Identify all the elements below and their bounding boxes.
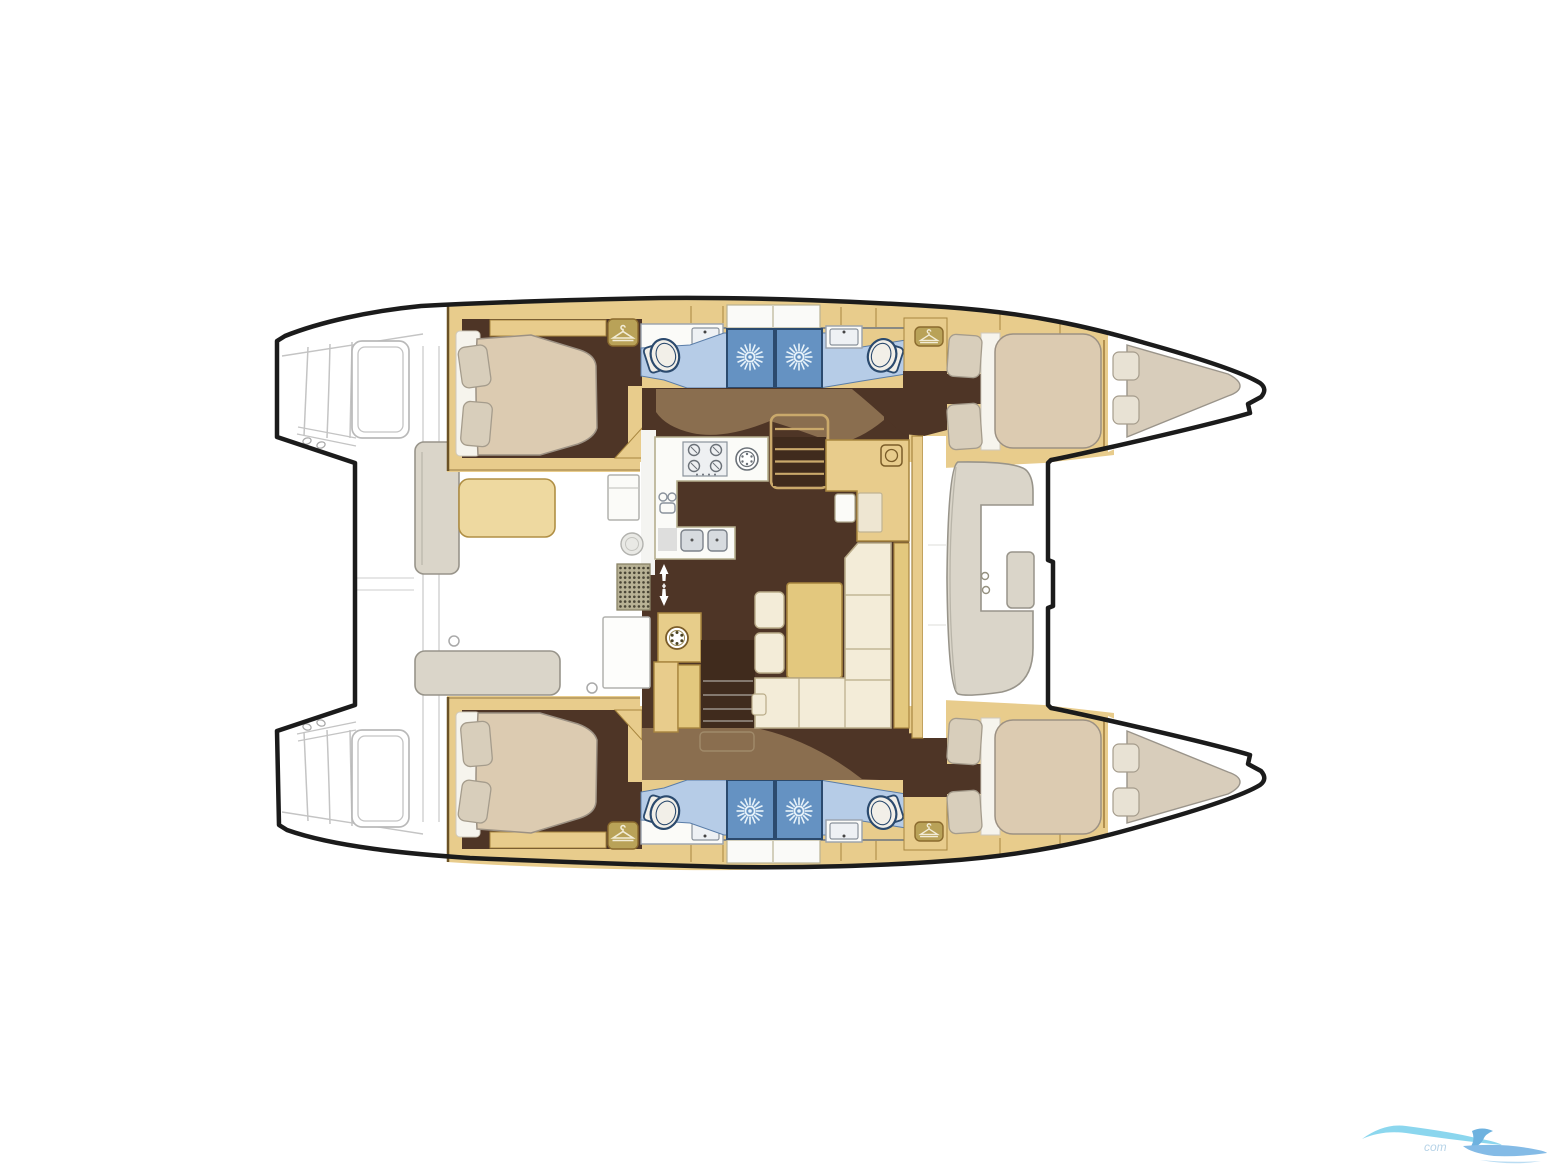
svg-text:com: com [1424, 1140, 1447, 1154]
